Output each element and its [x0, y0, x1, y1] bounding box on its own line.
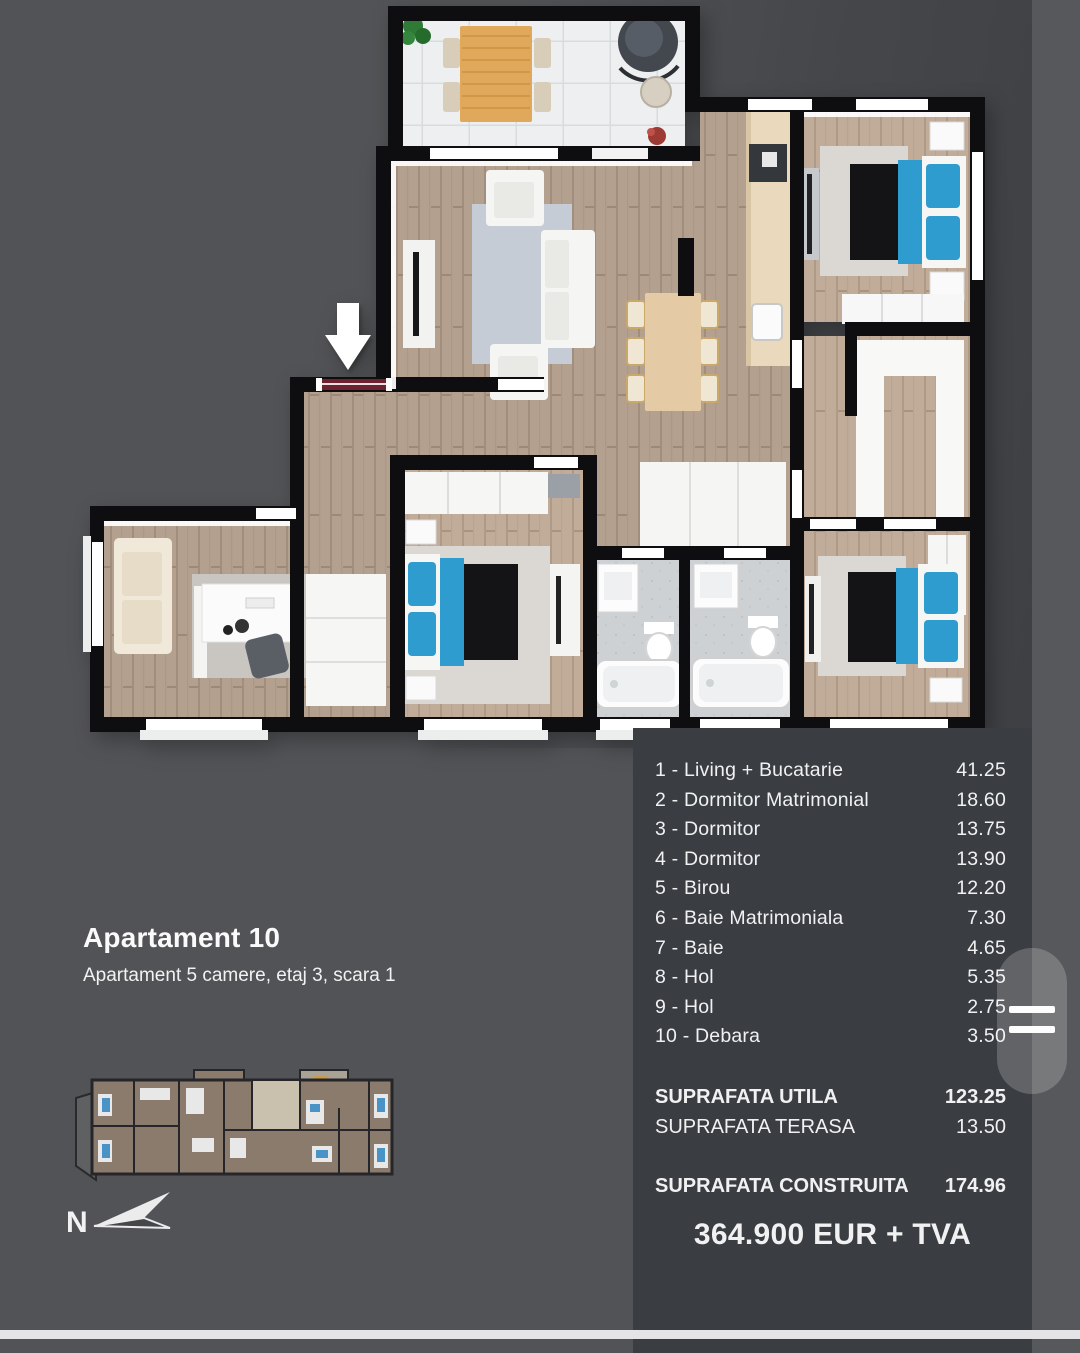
room-area: 12.20 — [956, 874, 1006, 904]
scroll-handle[interactable] — [997, 948, 1067, 1094]
room-label: 2 - Dormitor Matrimonial — [655, 786, 869, 816]
kitchen-furniture — [746, 112, 790, 366]
room-label: 8 - Hol — [655, 963, 714, 993]
room-area: 4.65 — [967, 934, 1006, 964]
hall-closet — [306, 574, 386, 706]
room-label: 1 - Living + Bucatarie — [655, 756, 843, 786]
room-label: 7 - Baie — [655, 934, 724, 964]
total-value: 13.50 — [956, 1113, 1006, 1143]
room-row: 6 - Baie Matrimoniala7.30 — [633, 904, 1032, 934]
room-row: 1 - Living + Bucatarie41.25 — [633, 756, 1032, 786]
room-row: 4 - Dormitor13.90 — [633, 845, 1032, 875]
room-row: 10 - Debara3.50 — [633, 1022, 1032, 1052]
page-title: Apartament 10 — [83, 922, 396, 954]
walk-in-closet-furniture — [856, 340, 964, 517]
total-label: SUPRAFATA CONSTRUITA — [655, 1172, 909, 1202]
room-label: 6 - Baie Matrimoniala — [655, 904, 843, 934]
north-arrow-icon: N — [64, 1186, 180, 1240]
apartment-info-panel: 1 - Living + Bucatarie41.25 2 - Dormitor… — [633, 728, 1032, 1353]
real-estate-plan-page: { "page": { "background": "#515356", "pa… — [0, 0, 1080, 1353]
room-list: 1 - Living + Bucatarie41.25 2 - Dormitor… — [633, 756, 1032, 1052]
total-row-utila: SUPRAFATA UTILA123.25 — [633, 1083, 1032, 1113]
surface-totals: SUPRAFATA UTILA123.25 SUPRAFATA TERASA13… — [633, 1083, 1032, 1202]
room-row: 9 - Hol2.75 — [633, 993, 1032, 1023]
total-label: SUPRAFATA TERASA — [655, 1113, 855, 1143]
room-area: 41.25 — [956, 756, 1006, 786]
room-row: 3 - Dormitor13.75 — [633, 815, 1032, 845]
total-value: 123.25 — [945, 1083, 1006, 1113]
floor-overview-image — [74, 1068, 406, 1190]
room-label: 4 - Dormitor — [655, 845, 760, 875]
total-label: SUPRAFATA UTILA — [655, 1083, 838, 1113]
room-row: 7 - Baie4.65 — [633, 934, 1032, 964]
total-row-construita: SUPRAFATA CONSTRUITA174.96 — [633, 1172, 1032, 1202]
north-label: N — [66, 1206, 88, 1239]
total-row-terasa: SUPRAFATA TERASA13.50 — [633, 1113, 1032, 1143]
room-label: 9 - Hol — [655, 993, 714, 1023]
room-label: 3 - Dormitor — [655, 815, 760, 845]
entrance-arrow-icon — [325, 303, 371, 370]
viewer-background-strip — [1032, 0, 1080, 1353]
scroll-handle-line — [1009, 1026, 1055, 1033]
room-row: 8 - Hol5.35 — [633, 963, 1032, 993]
hall-cabinets — [640, 462, 786, 546]
room-area: 18.60 — [956, 786, 1006, 816]
room-label: 5 - Birou — [655, 874, 731, 904]
total-value: 174.96 — [945, 1172, 1006, 1202]
floor-plan-image — [0, 0, 1032, 748]
bottom-divider — [0, 1330, 1080, 1339]
price: 364.900 EUR + TVA — [633, 1218, 1032, 1252]
room-area: 7.30 — [967, 904, 1006, 934]
room-area: 13.75 — [956, 815, 1006, 845]
scroll-handle-line — [1009, 1006, 1055, 1013]
room-label: 10 - Debara — [655, 1022, 760, 1052]
page-subtitle: Apartament 5 camere, etaj 3, scara 1 — [83, 965, 396, 987]
room-area: 13.90 — [956, 845, 1006, 875]
title-block: Apartament 10 Apartament 5 camere, etaj … — [83, 922, 396, 987]
room-row: 2 - Dormitor Matrimonial18.60 — [633, 786, 1032, 816]
room-row: 5 - Birou12.20 — [633, 874, 1032, 904]
